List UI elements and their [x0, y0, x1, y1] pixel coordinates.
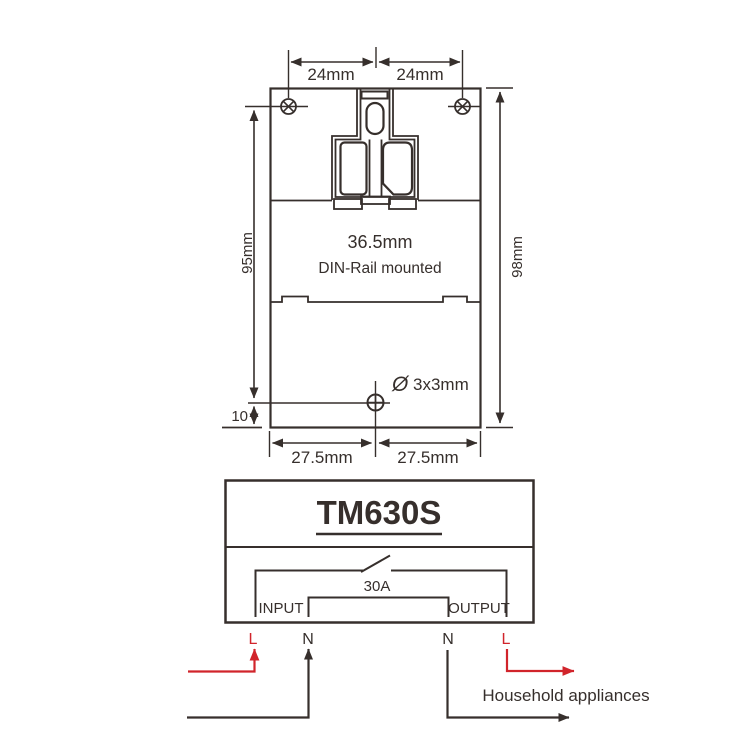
- terminal-neutral-out-label: N: [442, 631, 454, 648]
- output-label: OUTPUT: [448, 600, 510, 617]
- width-label: 36.5mm: [347, 232, 412, 252]
- terminal-neutral-in-label: N: [302, 631, 314, 648]
- clip-center-column: [370, 140, 382, 197]
- product-diagram-page: 24mm 24mm 95mm 10 98mm 36.5mm DIN-Rail m…: [0, 0, 750, 750]
- clip-spring-slot: [367, 103, 384, 134]
- switch-rating-label: 30A: [364, 578, 391, 595]
- dimension-27.5mm-left-label: 27.5mm: [291, 448, 352, 467]
- lower-seam-line: [271, 297, 481, 303]
- dimension-98mm-label: 98mm: [509, 236, 526, 278]
- bottom-mounting-hole: Ø 3x3mm: [368, 373, 469, 457]
- hole-diameter-symbol: Ø: [391, 373, 410, 396]
- load-label: Household appliances: [482, 686, 649, 705]
- clip-outer-wall: [332, 89, 418, 201]
- dimension-top: 24mm 24mm: [289, 47, 463, 98]
- live-in-wire: [188, 649, 255, 672]
- neutral-in-wire: [187, 649, 309, 718]
- terminal-live-in-label: L: [249, 631, 258, 648]
- clip-window-left: [341, 143, 367, 195]
- clip-top-slot: [362, 92, 388, 99]
- hole-size-label: 3x3mm: [413, 375, 469, 394]
- dimension-27.5mm-right-label: 27.5mm: [397, 448, 458, 467]
- din-rail-clip: [332, 89, 418, 210]
- live-out-wire: [507, 649, 574, 671]
- din-rail-note: DIN-Rail mounted: [318, 260, 441, 277]
- clip-window-right: [383, 143, 412, 195]
- screw-hole-right: [448, 99, 481, 114]
- input-label: INPUT: [259, 600, 304, 617]
- diagram-canvas: 24mm 24mm 95mm 10 98mm 36.5mm DIN-Rail m…: [0, 0, 750, 750]
- dimension-24mm-left-label: 24mm: [307, 65, 354, 84]
- model-name: TM630S: [317, 494, 442, 531]
- switch-blade: [361, 556, 390, 573]
- dimension-95mm-label: 95mm: [239, 232, 256, 274]
- neutral-bus-line: [309, 598, 449, 618]
- terminal-live-out-label: L: [502, 631, 511, 648]
- wiring-diagram: TM630S 30A INPUT OUTPUT L N N L Househol…: [187, 481, 650, 718]
- dimension-10-label: 10: [231, 408, 248, 425]
- dimension-24mm-right-label: 24mm: [396, 65, 443, 84]
- dimension-drawing: 24mm 24mm 95mm 10 98mm 36.5mm DIN-Rail m…: [222, 47, 526, 467]
- clip-foot-right: [389, 199, 416, 209]
- dimension-right: 98mm: [486, 88, 526, 428]
- neutral-out-wire: [448, 650, 570, 718]
- clip-foot-left: [334, 199, 362, 209]
